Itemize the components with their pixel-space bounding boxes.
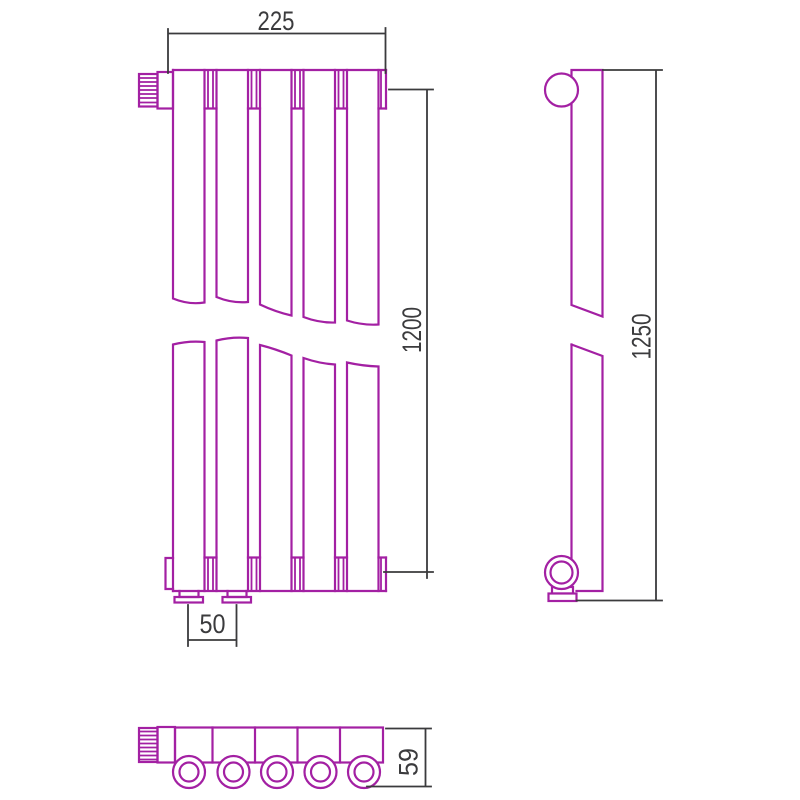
- dim-total-height-label: 1250: [627, 314, 657, 360]
- bottom-connection-fittings: [175, 591, 252, 603]
- dimension-annotations: 225 1200 50 1250 59: [168, 6, 662, 787]
- front-view: [139, 70, 386, 603]
- collector-rings: [173, 756, 380, 788]
- bottom-view: [139, 727, 383, 788]
- side-view: [545, 70, 603, 601]
- dim-axis-height-label: 1200: [397, 307, 427, 353]
- threaded-fitting-bottom: [139, 727, 175, 763]
- dim-width: 225: [168, 6, 386, 73]
- dim-total-height: 1250: [577, 70, 663, 601]
- bottom-header: [166, 558, 387, 592]
- dim-connection-spacing-label: 50: [200, 609, 226, 639]
- panels-lower: [173, 338, 379, 591]
- panels-upper: [173, 70, 379, 325]
- dim-depth-label: 59: [394, 748, 424, 776]
- side-bottom-ring-inner: [551, 562, 573, 584]
- drawing-sheet: 225 1200 50 1250 59: [0, 0, 800, 800]
- side-profile-lower: [572, 345, 603, 592]
- dim-width-label: 225: [258, 6, 295, 36]
- threaded-fitting-front: [139, 72, 173, 109]
- dim-connection-spacing: 50: [188, 605, 237, 646]
- side-profile-upper: [572, 70, 603, 317]
- dim-axis-height: 1200: [384, 90, 433, 579]
- radiator-technical-drawing: 225 1200 50 1250 59: [0, 0, 800, 800]
- side-fitting-flange: [549, 594, 577, 602]
- side-top-pipe-circle: [545, 74, 578, 107]
